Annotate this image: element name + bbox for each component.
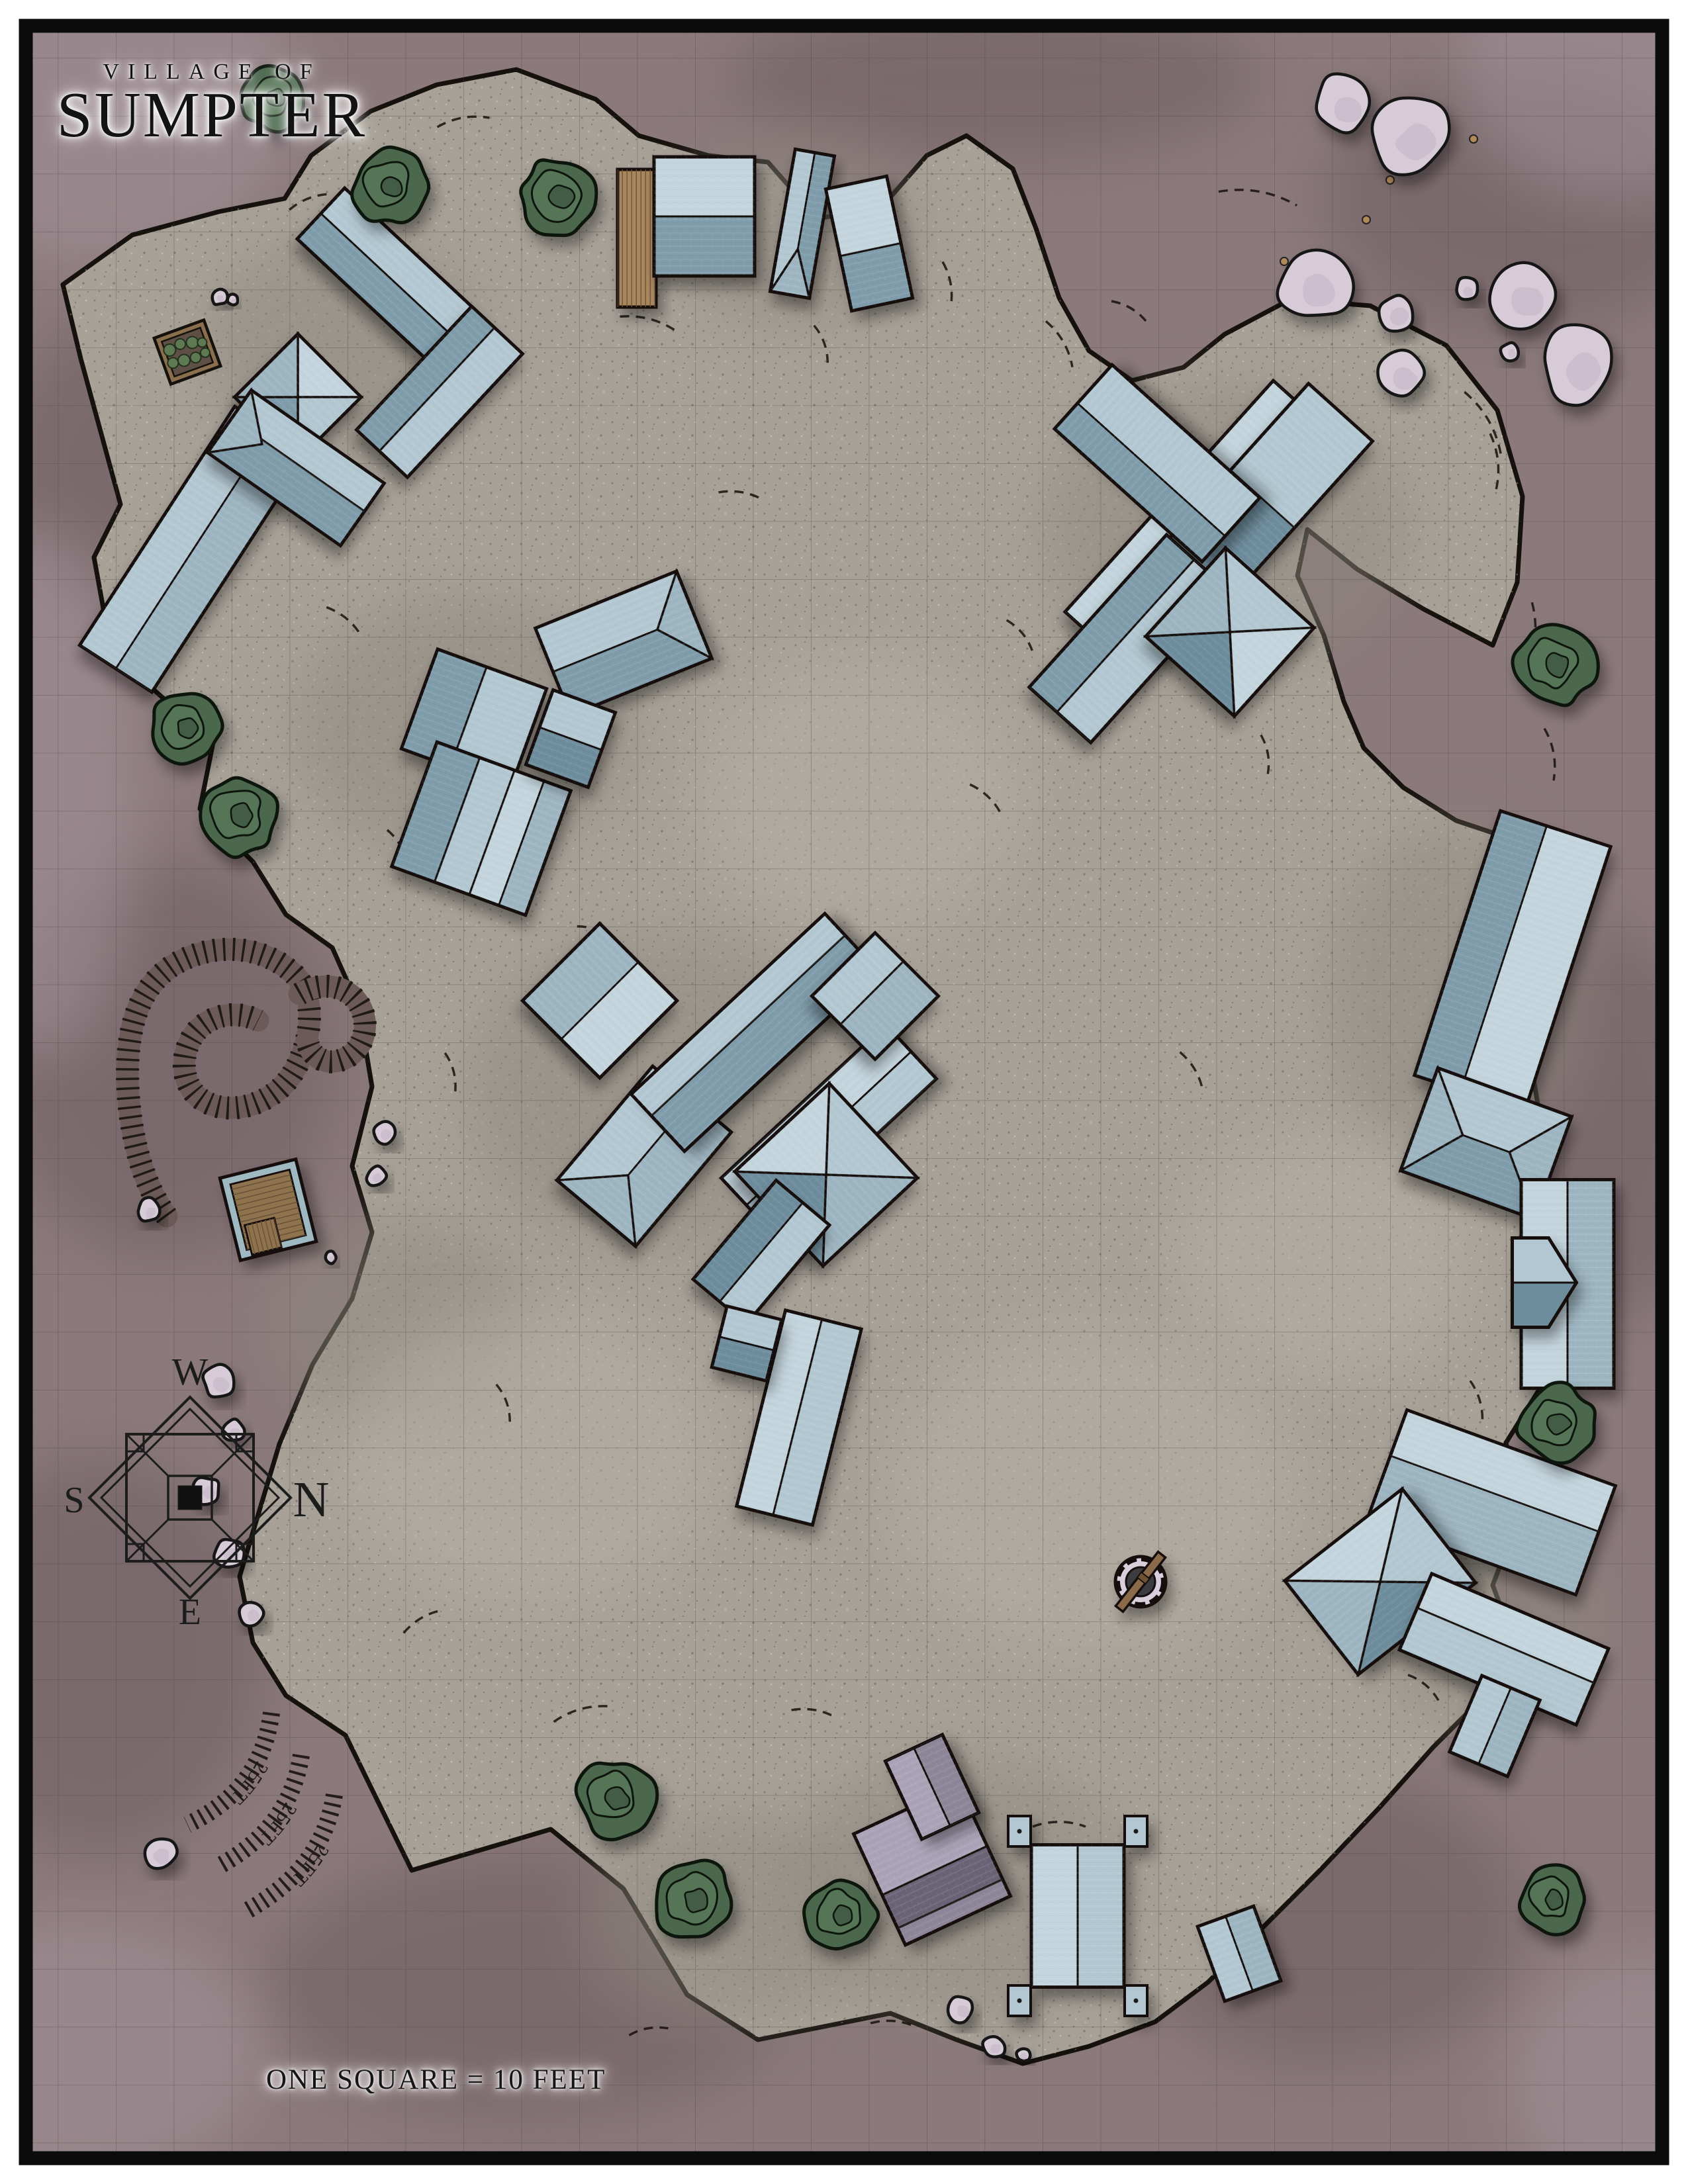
compass-core <box>178 1486 202 1510</box>
rock <box>982 2036 1005 2057</box>
path-shape <box>178 718 198 738</box>
rock <box>1017 2049 1031 2061</box>
scale-note: ONE SQUARE = 10 FEET <box>266 2064 606 2096</box>
rock <box>374 1122 395 1145</box>
pebble-dot <box>1362 216 1370 224</box>
compass-label-west: W <box>172 1350 209 1393</box>
path-shape <box>1511 287 1544 316</box>
pebble-dot <box>1386 176 1394 184</box>
compass-label-east: E <box>179 1592 201 1633</box>
map-title-name: SUMPTER <box>40 85 384 146</box>
rock <box>240 1602 264 1626</box>
path-shape <box>990 2044 1000 2054</box>
pebble-dot <box>1280 257 1288 265</box>
wooden-deck <box>618 169 656 307</box>
roof-texture <box>1031 1845 1124 1987</box>
compass-label-north: N <box>293 1472 330 1527</box>
post-dot <box>1017 1999 1022 2003</box>
rock <box>326 1251 336 1263</box>
pebble-dot <box>1470 135 1477 143</box>
roof-texture <box>654 157 755 276</box>
rock <box>228 295 238 305</box>
hall-top <box>654 157 755 276</box>
post-dot <box>1134 1829 1139 1834</box>
path-shape <box>833 1905 852 1926</box>
map-page: 25FT25FT25FTWSNE VILLAGE OF SUMPTER ONE … <box>0 0 1688 2184</box>
post-dot <box>1134 1999 1139 2003</box>
rock <box>1501 343 1519 361</box>
rock <box>948 1997 972 2023</box>
compass-label-south: S <box>64 1480 84 1521</box>
path-shape <box>381 177 402 197</box>
post-dot <box>1017 1829 1022 1834</box>
rect-shape <box>618 169 656 307</box>
rock <box>1379 295 1413 331</box>
rock <box>138 1197 160 1221</box>
map-content: 25FT25FT25FTWSNE <box>0 0 1688 2184</box>
path-shape <box>685 1889 708 1913</box>
rock <box>1457 277 1477 299</box>
map-title: VILLAGE OF SUMPTER <box>40 60 384 146</box>
tree-icon <box>657 1860 731 1937</box>
rock <box>212 289 228 304</box>
map-canvas: 25FT25FT25FTWSNE <box>0 0 1688 2184</box>
path-shape <box>549 185 575 208</box>
